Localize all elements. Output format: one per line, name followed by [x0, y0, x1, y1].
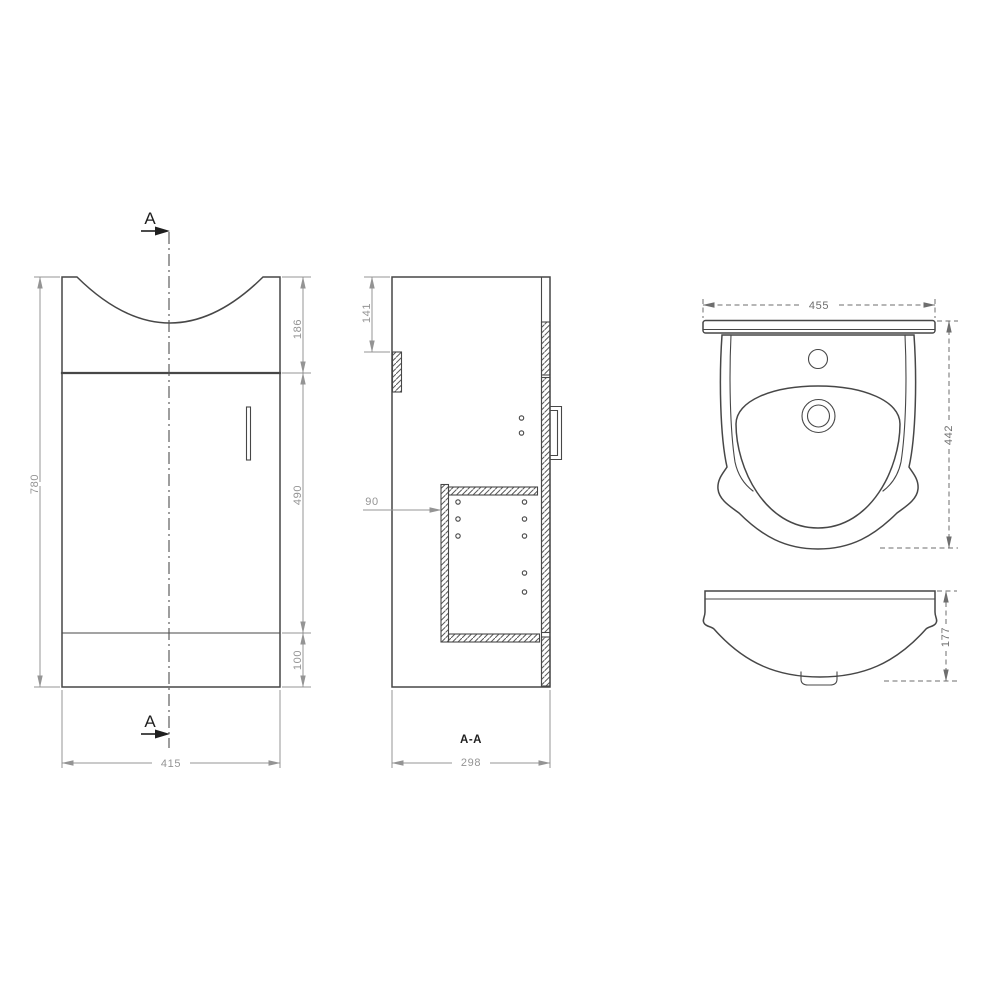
- section-letter-top: A: [144, 209, 156, 228]
- hole: [522, 534, 526, 538]
- front-view: A A 780 186 490: [29, 209, 311, 770]
- drawing-svg: A A 780 186 490: [0, 0, 1000, 1000]
- hole: [519, 431, 523, 435]
- basin-waste-fitting: [801, 672, 837, 685]
- hole: [522, 590, 526, 594]
- hole: [519, 416, 523, 420]
- dim-label-100: 100: [292, 650, 304, 670]
- section-letter-bottom: A: [144, 712, 156, 731]
- dim-label-455: 455: [809, 300, 829, 312]
- technical-drawing-canvas: A A 780 186 490: [0, 0, 1000, 1000]
- plinth-section: [542, 637, 551, 686]
- basin-plan-view: 455 442: [703, 299, 958, 549]
- door-section: [542, 378, 551, 633]
- section-arrow-top-head: [155, 227, 170, 236]
- basin-outer-outline: [718, 335, 918, 549]
- dim-label-298: 298: [461, 757, 481, 769]
- dim-label-415: 415: [161, 758, 181, 770]
- basin-front-view: 177: [703, 591, 957, 685]
- door-handle: [247, 407, 251, 460]
- hole: [456, 517, 460, 521]
- waste-hole-inner: [808, 405, 830, 427]
- dim-label-90: 90: [365, 496, 378, 508]
- hole: [456, 500, 460, 504]
- fixing-holes: [456, 416, 527, 594]
- dim-label-186: 186: [292, 319, 304, 339]
- section-view: 141 90 A-A 298: [361, 277, 562, 769]
- shelf-top-section: [449, 487, 538, 495]
- shelf-upright-section: [441, 485, 449, 643]
- hanging-rail-section: [393, 352, 402, 392]
- basin-rim-inner-right: [883, 335, 906, 491]
- front-rail-section: [542, 322, 551, 375]
- dim-rail-offset: 141: [361, 277, 390, 352]
- basin-bowl-outline: [736, 386, 900, 528]
- basin-front-outline: [703, 591, 936, 677]
- door-handle-profile: [550, 407, 562, 460]
- basin-rim-inner-left: [730, 335, 753, 491]
- hole: [522, 517, 526, 521]
- carcass-outline: [392, 277, 550, 687]
- hole: [522, 571, 526, 575]
- hole: [456, 534, 460, 538]
- section-title-block: A-A 298: [392, 690, 550, 769]
- dim-chain-right: 186 490 100: [282, 277, 311, 687]
- dim-label-141: 141: [361, 303, 373, 323]
- cabinet-outline: [62, 277, 280, 687]
- shelf-bottom-section: [449, 634, 540, 642]
- dim-label-442: 442: [943, 425, 955, 445]
- dim-basin-depth: 442: [880, 321, 958, 548]
- tap-hole: [809, 350, 828, 369]
- dim-label-780: 780: [29, 474, 41, 494]
- basin-back-ledge: [703, 321, 935, 334]
- dim-basin-width: 455: [703, 299, 935, 318]
- dim-label-177: 177: [940, 627, 952, 647]
- dim-overall-height: 780: [29, 277, 60, 687]
- dim-label-490: 490: [292, 485, 304, 505]
- dim-overall-width: 415: [62, 690, 280, 770]
- dim-shelf-inset: 90: [363, 496, 441, 510]
- hole: [522, 500, 526, 504]
- section-arrow-bottom-head: [155, 730, 170, 739]
- section-title: A-A: [460, 734, 482, 746]
- section-marker-bottom: A: [141, 712, 170, 739]
- section-marker-top: A: [141, 209, 170, 236]
